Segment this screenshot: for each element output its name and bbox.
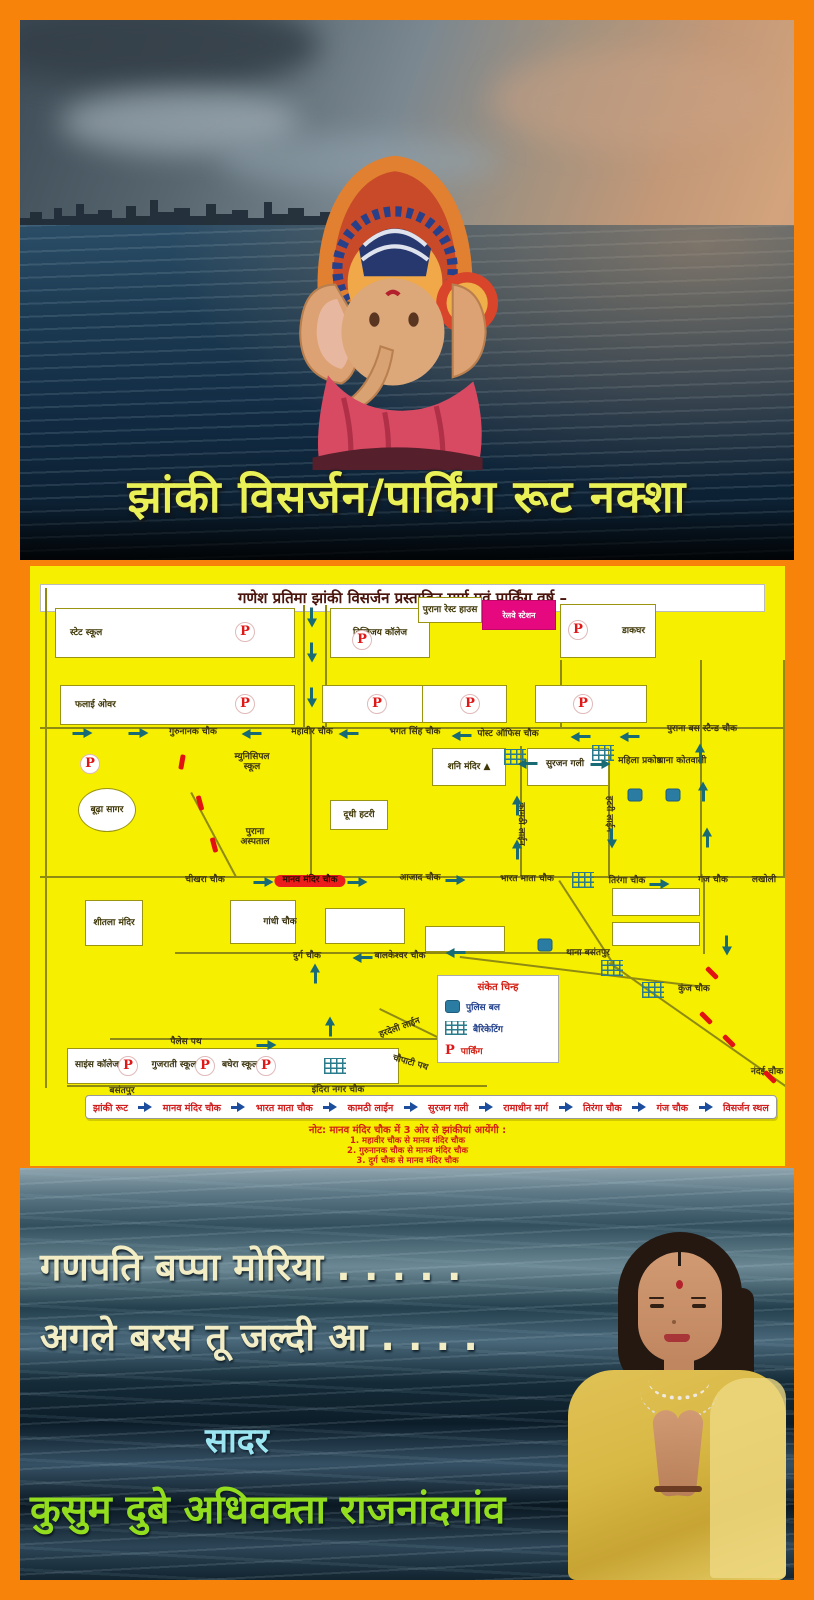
bangle-shape: [654, 1486, 702, 1492]
direction-arrow-icon: [307, 607, 317, 628]
chant-line-1: गणपति बप्पा मोरिया . . . . .: [40, 1240, 461, 1292]
ganesh-idol-illustration: [270, 130, 520, 470]
route-step: गंज चौक: [657, 1101, 689, 1114]
barricade-icon: [642, 982, 664, 998]
parking-icon: P: [195, 1056, 215, 1076]
direction-arrow-icon: [307, 642, 317, 663]
parking-icon: P: [460, 694, 480, 714]
route-step: झांकी रूट: [93, 1101, 128, 1114]
direction-arrow-icon: [695, 744, 705, 765]
direction-arrow-icon: [339, 729, 360, 739]
direction-arrow-icon: [307, 687, 317, 708]
building-block: शनि मंदिर ▲: [432, 748, 506, 786]
route-arrow-icon: [632, 1102, 646, 1112]
map-label: बालकेश्वर चौक: [374, 952, 425, 962]
route-step: मानव मंदिर चौक: [163, 1101, 221, 1114]
note-line: 2. गुरुनानक चौक से मानव मंदिर चौक: [30, 1146, 785, 1156]
direction-arrow-icon: [452, 731, 473, 741]
route-arrow-icon: [323, 1102, 337, 1112]
poster-title: झांकी विसर्जन/पार्किंग रूट नक्शा: [20, 465, 794, 526]
map-label: गंज चौक: [698, 876, 728, 886]
map-label: लखोली: [752, 876, 776, 886]
route-step: कामठी लाईन: [348, 1101, 394, 1114]
direction-arrow-icon: [353, 953, 374, 963]
warm-cloud-shape: [490, 50, 770, 150]
poster-root: झांकी विसर्जन/पार्किंग रूट नक्शा गणेश प्…: [0, 0, 814, 1600]
building-label: बूढ़ा सागर: [89, 805, 126, 815]
lake-shape: बूढ़ा सागर: [78, 788, 136, 832]
building-block: दिग्विजय कॉलेज: [330, 608, 430, 658]
direction-arrow-icon: [607, 828, 617, 849]
route-step: विसर्जन स्थल: [723, 1101, 769, 1114]
parking-icon: P: [445, 1043, 455, 1058]
railway-station-box: रेलवे स्टेशन: [482, 600, 556, 630]
map-label: साइंस कॉलेज: [72, 1061, 122, 1071]
lips-shape: [664, 1334, 690, 1342]
direction-arrow-icon: [310, 964, 320, 985]
legend-item-parking: P पार्किंग: [445, 1039, 551, 1061]
bindi-dot: [676, 1280, 683, 1289]
parking-icon: P: [568, 620, 588, 640]
map-label: आजाद चौक: [399, 874, 440, 884]
route-dash-icon: [196, 795, 205, 811]
direction-arrow-icon: [512, 796, 522, 817]
direction-arrow-icon: [325, 1017, 335, 1038]
barricade-icon: [572, 872, 594, 888]
road-segment: [45, 588, 47, 1088]
building-label: डाकघर: [620, 626, 655, 636]
building-block: पुराना रेस्ट हाउस: [418, 597, 482, 623]
route-arrow-icon: [404, 1102, 418, 1112]
dark-cloud-shape: [20, 20, 320, 90]
map-label: गांधी चौक: [263, 918, 296, 928]
barricade-icon: [324, 1058, 346, 1074]
direction-arrow-icon: [446, 948, 467, 958]
route-step: तिरंगा चौक: [583, 1101, 622, 1114]
legend-label: पार्किंग: [461, 1044, 483, 1057]
hair-part-line: [678, 1252, 681, 1266]
parking-icon: P: [367, 694, 387, 714]
building-block: [612, 922, 700, 946]
map-label: दुर्ग चौक: [293, 952, 321, 962]
map-label: भारत माता चौक: [500, 875, 554, 885]
eye-shape: [650, 1304, 664, 1308]
building-block: [612, 888, 700, 916]
map-label: पुराना बस स्टैन्ड चौक: [667, 725, 737, 735]
map-label: पैलेस पथ: [170, 1038, 201, 1048]
route-dash-icon: [705, 966, 719, 980]
route-arrow-icon: [138, 1102, 152, 1112]
author-name: कुसुम दुबे अधिवक्ता राजनांदगांव: [30, 1480, 505, 1535]
police-icon: [666, 789, 681, 802]
barricade-icon: [445, 1021, 467, 1035]
building-label: शनि मंदिर ▲: [446, 762, 493, 772]
building-block: दूधी हटरी: [330, 800, 388, 830]
route-arrow-icon: [231, 1102, 245, 1112]
map-label: तिरंगा चौक: [609, 877, 646, 887]
police-icon: [445, 1000, 460, 1013]
map-label: पुराना अस्पताल: [230, 828, 280, 848]
route-arrow-icon: [479, 1102, 493, 1112]
map-label: म्युनिसिपल स्कूल: [227, 753, 277, 773]
salute-text: सादर: [205, 1416, 269, 1462]
note-title: नोट: मानव मंदिर चौक में 3 ओर से झांकीयां…: [30, 1122, 785, 1136]
direction-arrow-icon: [256, 1040, 277, 1050]
route-dash-icon: [699, 1011, 713, 1025]
legend-label: बैरिकेटिंग: [473, 1022, 503, 1035]
map-label: चीखरा चौक: [185, 876, 225, 886]
parking-icon: P: [256, 1056, 276, 1076]
parking-icon: P: [80, 754, 100, 774]
barricade-icon: [601, 960, 623, 976]
legend-box: संकेत चिन्ह पुलिस बल बैरिकेटिंग P पार्कि…: [437, 975, 559, 1063]
legend-label: पुलिस बल: [466, 1000, 500, 1013]
eye-shape: [692, 1304, 706, 1308]
note-line: 3. दुर्ग चौक से मानव मंदिर चौक: [30, 1156, 785, 1166]
building-label: स्टेट स्कूल: [56, 628, 104, 638]
map-label: सुरजन गली: [546, 760, 584, 770]
route-arrow-icon: [559, 1102, 573, 1112]
building-label: दूधी हटरी: [341, 810, 376, 820]
route-step: सुरजन गली: [428, 1101, 468, 1114]
nose-pin-dot: [672, 1320, 676, 1324]
route-step: रामाधीन मार्ग: [503, 1101, 548, 1114]
road-segment: [609, 962, 785, 1101]
direction-arrow-icon: [518, 759, 539, 769]
route-map: गणेश प्रतिमा झांकी विसर्जन प्रस्तावित मा…: [30, 566, 785, 1166]
parking-icon: P: [118, 1056, 138, 1076]
parking-icon: P: [573, 694, 593, 714]
map-label: भगत सिंह चौक: [390, 728, 441, 738]
direction-arrow-icon: [347, 877, 368, 887]
direction-arrow-icon: [620, 732, 641, 742]
direction-arrow-icon: [253, 877, 274, 887]
direction-arrow-icon: [242, 729, 263, 739]
direction-arrow-icon: [128, 728, 149, 738]
note-lines: 1. महावीर चौक से मानव मंदिर चौक2. गुरुना…: [30, 1136, 785, 1166]
direction-arrow-icon: [722, 935, 732, 956]
road-segment: [310, 729, 312, 878]
road-segment: [303, 605, 305, 729]
pearl-necklace-inner: [648, 1360, 710, 1400]
hero-photo: झांकी विसर्जन/पार्किंग रूट नक्शा: [20, 20, 794, 560]
road-segment: [783, 660, 785, 878]
map-label: कुंज चौक: [678, 985, 710, 995]
road-segment: [703, 878, 705, 954]
police-icon: [628, 789, 643, 802]
route-dash-icon: [178, 754, 186, 770]
map-label: महावीर चौक: [291, 728, 333, 738]
railway-station-label: रेलवे स्टेशन: [503, 610, 536, 621]
map-canvas: स्टेट स्कूलदिग्विजय कॉलेजपुराना रेस्ट हा…: [30, 566, 785, 1166]
building-label: फलाई ओवर: [61, 700, 118, 710]
building-label: पुराना रेस्ट हाउस: [421, 605, 480, 615]
footer-photo: गणपति बप्पा मोरिया . . . . . अगले बरस तू…: [20, 1168, 794, 1580]
direction-arrow-icon: [72, 728, 93, 738]
legend-title: संकेत चिन्ह: [445, 979, 551, 993]
map-label: मानव मंदिर चौक: [274, 875, 345, 887]
building-block: [325, 908, 405, 944]
direction-arrow-icon: [445, 875, 466, 885]
route-bar: झांकी रूटमानव मंदिर चौकभारत माता चौककामठ…: [85, 1095, 777, 1119]
route-step: भारत माता चौक: [256, 1101, 313, 1114]
direction-arrow-icon: [698, 782, 708, 803]
woman-photo: [560, 1228, 794, 1580]
eyebrow-shape: [649, 1297, 664, 1299]
map-label: थाना बसंतपुर: [563, 949, 613, 959]
note-line: 1. महावीर चौक से मानव मंदिर चौक: [30, 1136, 785, 1146]
building-block: स्टेट स्कूल: [55, 608, 295, 658]
note-box: नोट: मानव मंदिर चौक में 3 ओर से झांकीयां…: [30, 1122, 785, 1166]
eyebrow-shape: [691, 1297, 706, 1299]
direction-arrow-icon: [590, 759, 611, 769]
map-label: गुरुनानक चौक: [169, 728, 217, 738]
building-label: शीतला मंदिर: [91, 918, 136, 928]
map-label: पोस्ट ऑफिस चौक: [477, 730, 538, 740]
route-arrow-icon: [699, 1102, 713, 1112]
direction-arrow-icon: [571, 732, 592, 742]
map-label: गुजराती स्कूल: [149, 1061, 199, 1071]
building-block: शीतला मंदिर: [85, 900, 143, 946]
direction-arrow-icon: [702, 828, 712, 849]
dupatta-shape: [710, 1378, 786, 1578]
parking-icon: P: [235, 622, 255, 642]
direction-arrow-icon: [649, 879, 670, 889]
road-segment: [110, 1038, 450, 1040]
police-icon: [538, 939, 553, 952]
legend-item-police: पुलिस बल: [445, 995, 551, 1017]
legend-item-barricading: बैरिकेटिंग: [445, 1017, 551, 1039]
parking-icon: P: [352, 630, 372, 650]
direction-arrow-icon: [512, 840, 522, 861]
chant-line-2: अगले बरस तू जल्दी आ . . . .: [40, 1310, 478, 1362]
building-block: फलाई ओवर: [60, 685, 295, 725]
parking-icon: P: [235, 694, 255, 714]
